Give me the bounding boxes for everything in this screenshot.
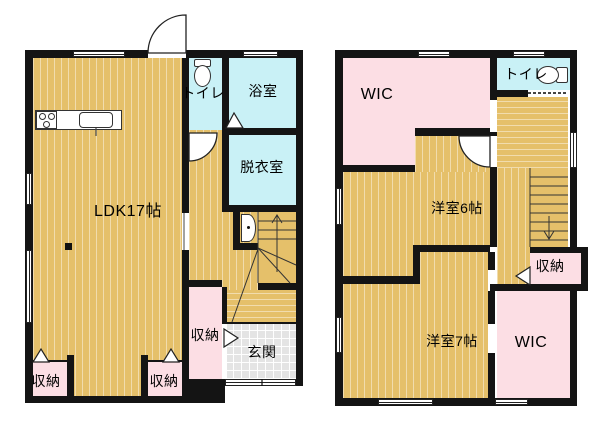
plan-line (258, 248, 290, 283)
room-label-wic-top: WIC (361, 86, 394, 104)
storage-mid-door-triangle (163, 349, 179, 362)
back-door-arc (148, 15, 186, 53)
bath-door-triangle (226, 113, 243, 128)
room-label-room6: 洋室6帖 (431, 198, 483, 218)
room-label-toilet-2f: トイレ (504, 64, 548, 84)
room-label-storage-2f: 収納 (536, 256, 565, 276)
toilet-1f-door-arc (189, 133, 217, 161)
floor-plan: LDK17帖 トイレ 浴室 脱衣室 収納 収納 収納 玄関 WIC トイレ 洋室… (0, 0, 600, 424)
door-triangles (33, 113, 530, 362)
plan-line (232, 249, 258, 322)
room-label-bath: 浴室 (249, 81, 278, 101)
storage-2f-door-triangle (516, 267, 530, 285)
room-label-toilet-1f: トイレ (181, 83, 225, 103)
storage-left-door-triangle (33, 349, 49, 362)
room-label-wic-bottom: WIC (515, 334, 548, 352)
storage-hall-door-triangle (224, 329, 238, 347)
room-label-room7: 洋室7帖 (426, 331, 478, 351)
room-label-storage-left: 収納 (32, 371, 61, 391)
misc-lines (96, 93, 567, 386)
room-label-ldk: LDK17帖 (94, 197, 162, 221)
room6-door-arc (459, 136, 490, 167)
room-label-genkan: 玄関 (248, 342, 277, 362)
room-label-dressing: 脱衣室 (240, 157, 284, 177)
stairs-1f-markings (232, 212, 296, 322)
room-label-storage-hall: 収納 (191, 325, 220, 345)
stairs-2f-markings (530, 168, 568, 247)
room-label-storage-mid: 収納 (150, 371, 179, 391)
